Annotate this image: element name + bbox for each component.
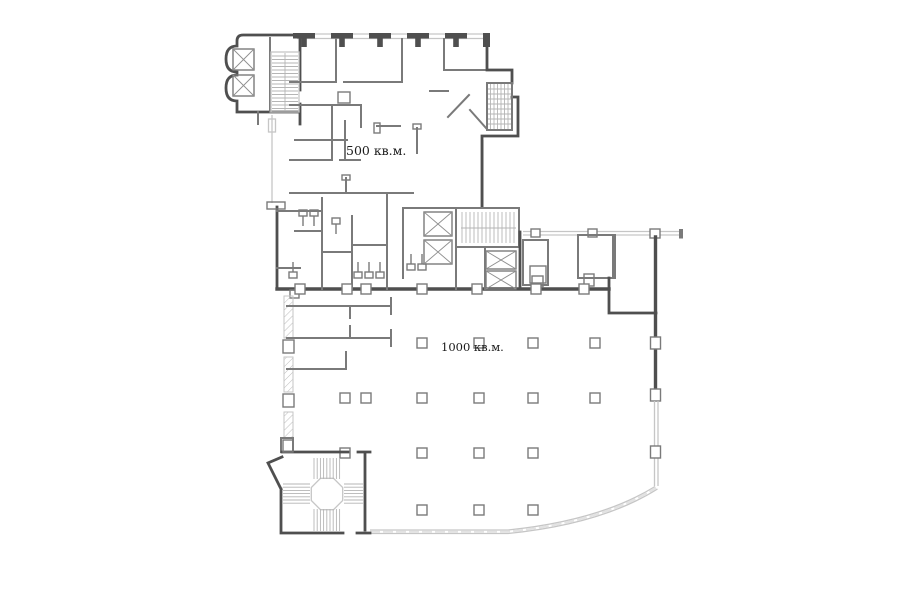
column-icon [342, 284, 352, 294]
column-icon [474, 505, 484, 515]
column-icon [474, 393, 484, 403]
elevator-icon [486, 251, 516, 269]
column-icon [590, 393, 600, 403]
upper-wing: 500 кв.м. [226, 33, 518, 207]
grand-stair-room [268, 440, 370, 533]
west-wall [281, 296, 294, 452]
column-icon [340, 393, 350, 403]
upper-wing-partitions [290, 39, 487, 160]
stair-icon [487, 83, 512, 130]
wc-block-partitions [277, 193, 387, 289]
column-icon [474, 448, 484, 458]
elevator-icon [233, 49, 254, 70]
column-icon [528, 393, 538, 403]
column-icon [417, 505, 427, 515]
entrance-block [226, 35, 300, 124]
column-icon [417, 393, 427, 403]
column-icon [579, 284, 589, 294]
floor-plan-canvas: 500 кв.м. [0, 0, 900, 604]
elevator-icon [424, 212, 452, 236]
lower-hall: 1000 кв.м. [281, 284, 658, 534]
stair-icon [283, 458, 364, 531]
elevator-icon [424, 240, 452, 264]
column-icon [417, 338, 427, 348]
column-icon [417, 448, 427, 458]
hall-partitions [287, 298, 391, 369]
column-icon [472, 284, 482, 294]
column-icon [528, 448, 538, 458]
area-label-500: 500 кв.м. [346, 143, 406, 158]
column-icon [590, 338, 600, 348]
column-icon [361, 393, 371, 403]
column-icon [361, 284, 371, 294]
facade-pilasters [293, 33, 490, 47]
stair-icon [458, 208, 519, 247]
elevator-icon [233, 75, 254, 96]
curtain-wall-icon [370, 487, 658, 534]
floor-plan-page: 500 кв.м. [0, 0, 900, 604]
area-label-1000: 1000 кв.м. [441, 340, 504, 354]
upper-right-block [482, 38, 518, 207]
column-icon [295, 284, 305, 294]
elevator-icon [486, 271, 516, 289]
column-grid [340, 338, 600, 515]
column-icon [528, 505, 538, 515]
column-icon [528, 338, 538, 348]
central-core [267, 175, 609, 298]
column-icon [531, 284, 541, 294]
column-icon [417, 284, 427, 294]
east-rooms [523, 229, 683, 486]
